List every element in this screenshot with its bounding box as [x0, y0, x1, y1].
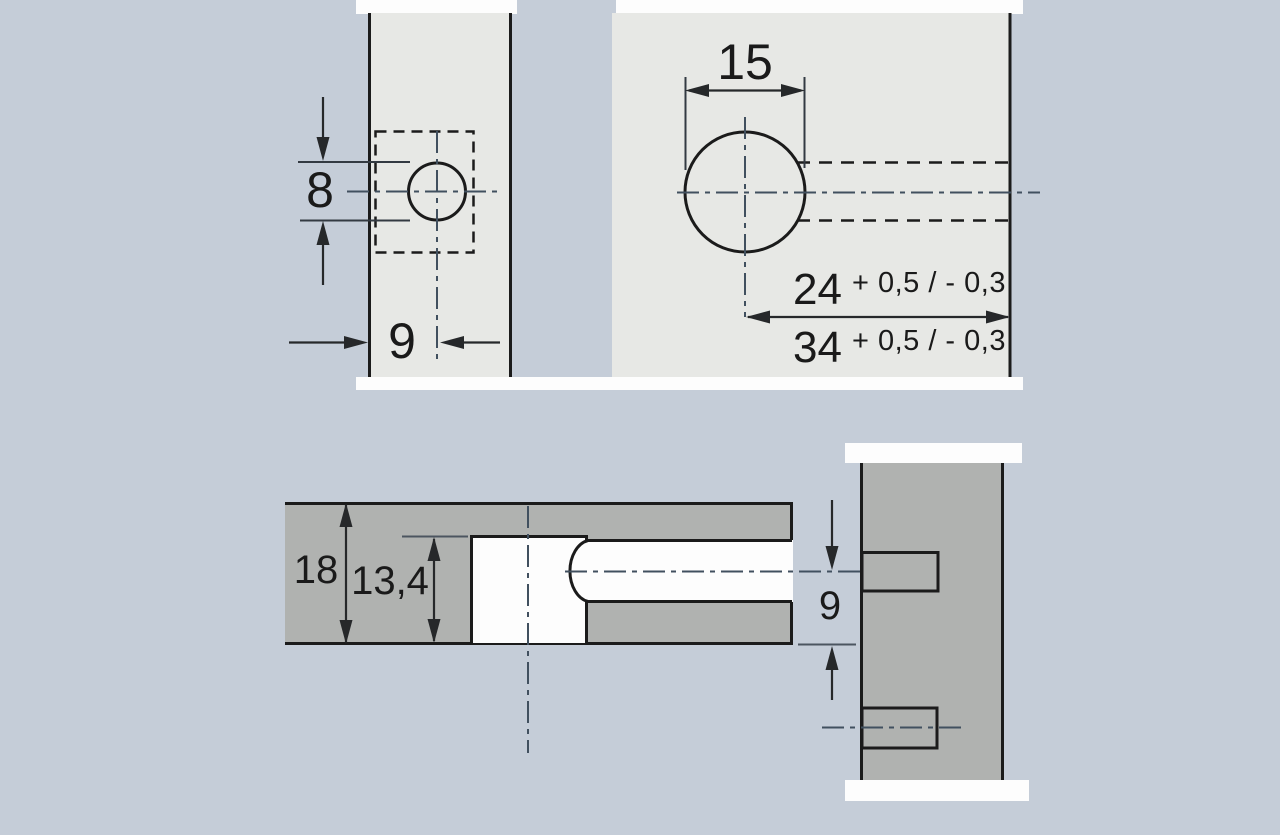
- dim-label-distance-34-with-tolerance: 34 + 0,5 / - 0,3: [793, 326, 1006, 370]
- vertical-panel-cut-band-top: [845, 443, 1022, 463]
- dim8-arrowhead-up-icon: [317, 221, 330, 245]
- dim-label-distance-24-with-tolerance: 24 + 0,5 / - 0,3: [793, 268, 1006, 312]
- dim-value-34: 34: [793, 326, 842, 370]
- dim-label-drilling-depth-13-4: 13,4: [351, 561, 429, 601]
- top-cut-band-right: [616, 0, 1023, 14]
- dim9b-arrowhead-down-icon: [826, 546, 839, 570]
- dim-tolerance-34: + 0,5 / - 0,3: [852, 327, 1006, 356]
- dim-value-24: 24: [793, 268, 842, 312]
- dim-label-cup-diameter-15: 15: [717, 37, 773, 87]
- top-cut-band-left: [356, 0, 517, 14]
- dim9b-arrowhead-up-icon: [826, 646, 839, 670]
- dim-tolerance-24: + 0,5 / - 0,3: [852, 269, 1006, 298]
- dim8-arrowhead-down-icon: [317, 137, 330, 161]
- bottom-cut-band: [356, 377, 1023, 390]
- dim-label-hole-diameter-8: 8: [306, 165, 334, 215]
- technical-drawing-canvas: 8 9 15 24 + 0,5 / - 0,3 34 + 0,5 / - 0,3…: [0, 0, 1280, 835]
- dim-label-offset-9: 9: [819, 586, 841, 626]
- dim9-arrowhead-right-icon: [344, 336, 368, 349]
- dim-label-edge-distance-9: 9: [388, 316, 416, 366]
- drawing-svg: [0, 0, 1280, 835]
- section-panel-vertical: [860, 463, 1004, 780]
- dim-label-panel-thickness-18: 18: [294, 550, 339, 590]
- vertical-panel-cut-band-bottom: [845, 780, 1029, 801]
- section-view: [285, 443, 1029, 801]
